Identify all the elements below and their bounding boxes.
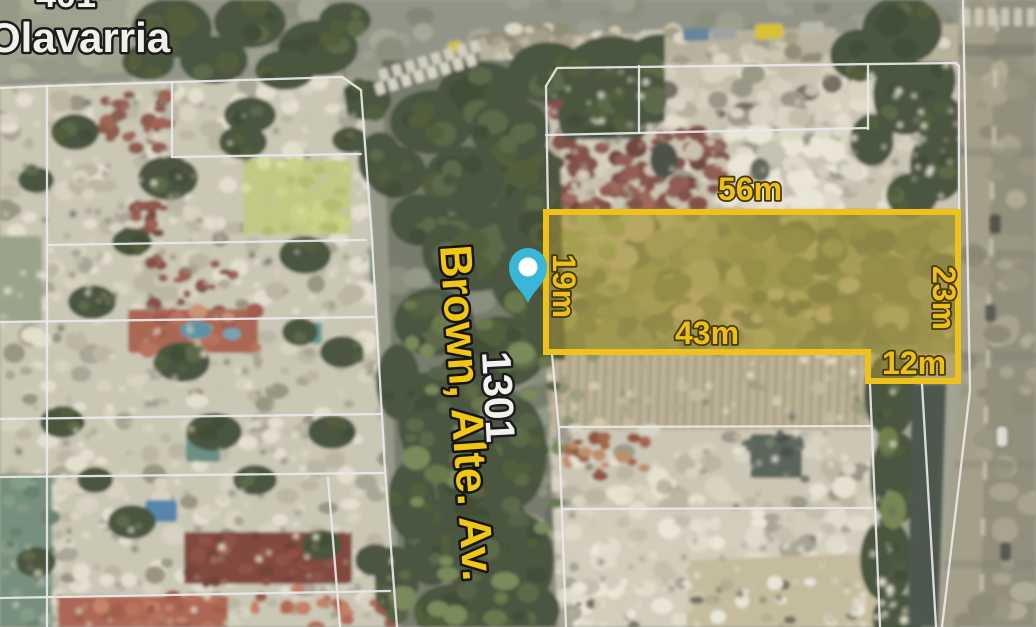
svg-text:1301: 1301 (473, 350, 524, 444)
svg-text:401: 401 (36, 0, 96, 15)
svg-text:12m: 12m (882, 345, 946, 381)
svg-text:56m: 56m (718, 171, 782, 207)
svg-text:Olavarria: Olavarria (0, 14, 171, 61)
svg-text:19m: 19m (546, 254, 582, 318)
svg-text:43m: 43m (675, 315, 739, 351)
svg-text:23m: 23m (926, 266, 962, 330)
